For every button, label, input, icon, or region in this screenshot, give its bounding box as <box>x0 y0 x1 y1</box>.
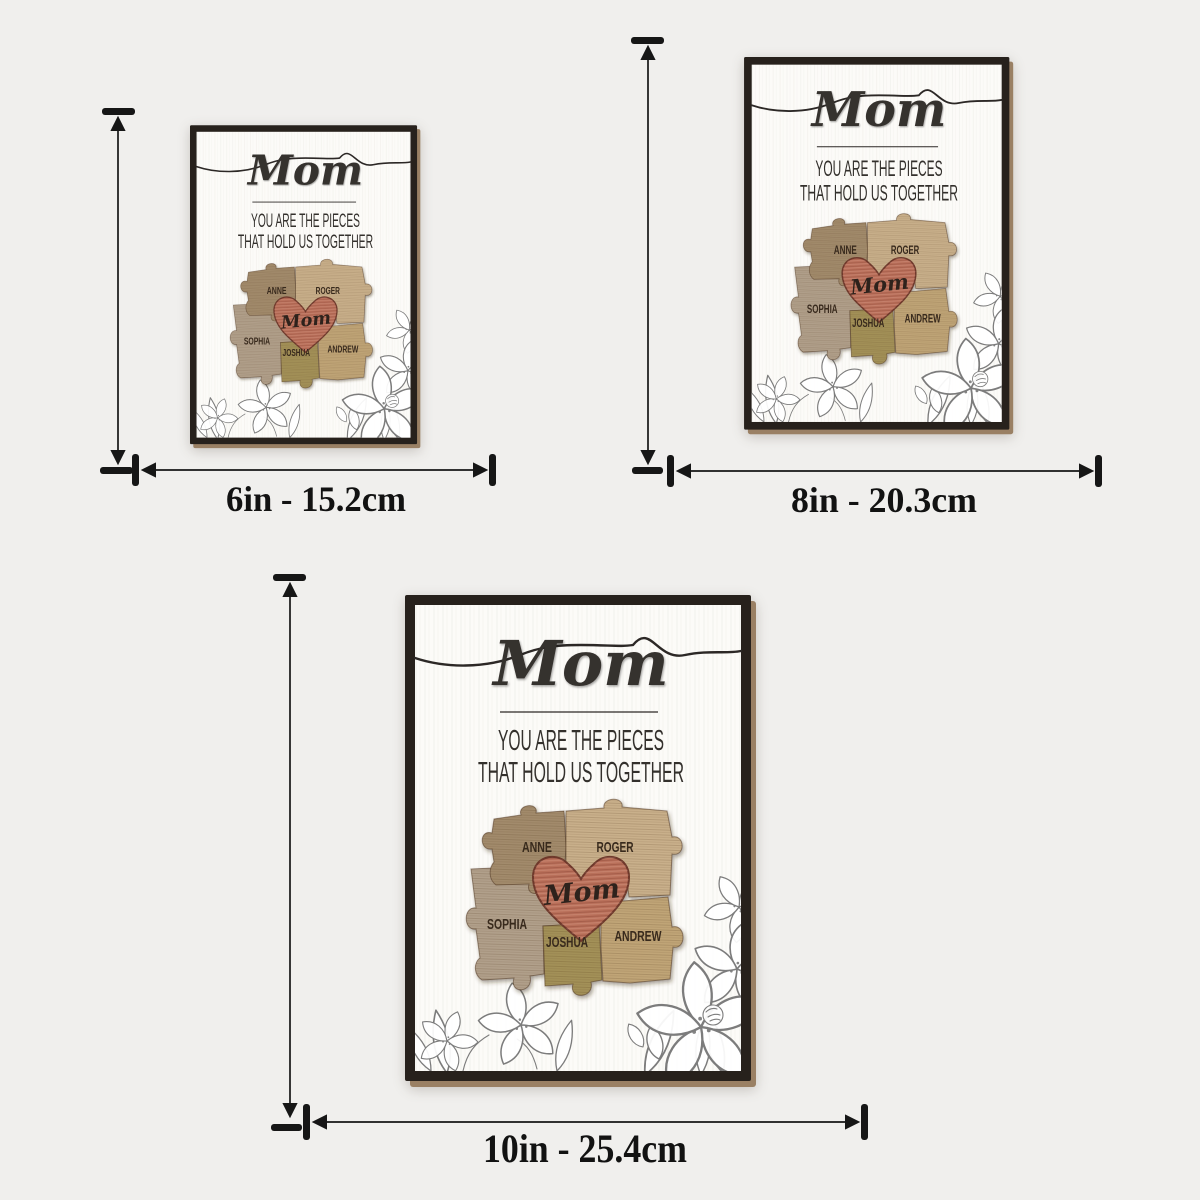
size-label-8in: 8in - 20.3cm <box>791 480 977 520</box>
arrow-cap <box>102 108 135 115</box>
size-label-6in: 6in - 15.2cm <box>226 479 406 519</box>
product-plaque-6in <box>190 125 421 449</box>
width-dimension-6in: 6in - 15.2cm <box>132 454 496 519</box>
arrow-cap <box>489 454 496 486</box>
arrow-cap <box>861 1104 868 1140</box>
arrow-cap <box>631 37 664 44</box>
arrow-cap <box>303 1104 310 1140</box>
arrow-cap <box>273 574 306 581</box>
arrow-cap <box>100 467 133 474</box>
width-dimension-10in: 10in - 25.4cm <box>303 1104 868 1171</box>
height-dimension-8in <box>631 37 664 474</box>
size-comparison-chart: Mom YOU ARE THE PIECES THAT HOLD US TOGE… <box>0 0 1200 1200</box>
arrow-cap <box>271 1124 302 1131</box>
height-dimension-6in <box>100 108 135 474</box>
width-dimension-8in: 8in - 20.3cm <box>667 455 1102 520</box>
arrow-cap <box>667 455 674 487</box>
height-dimension-10in <box>271 574 306 1131</box>
product-plaque-8in <box>744 57 1014 435</box>
arrow-cap <box>632 467 663 474</box>
plaque-8in-art <box>744 57 1014 435</box>
arrow-cap <box>1095 455 1102 487</box>
product-plaque-10in <box>405 595 757 1088</box>
arrow-cap <box>132 454 139 486</box>
plaque-6in-art <box>190 125 421 449</box>
plaque-10in-art <box>405 595 757 1088</box>
size-label-10in: 10in - 25.4cm <box>483 1126 687 1171</box>
